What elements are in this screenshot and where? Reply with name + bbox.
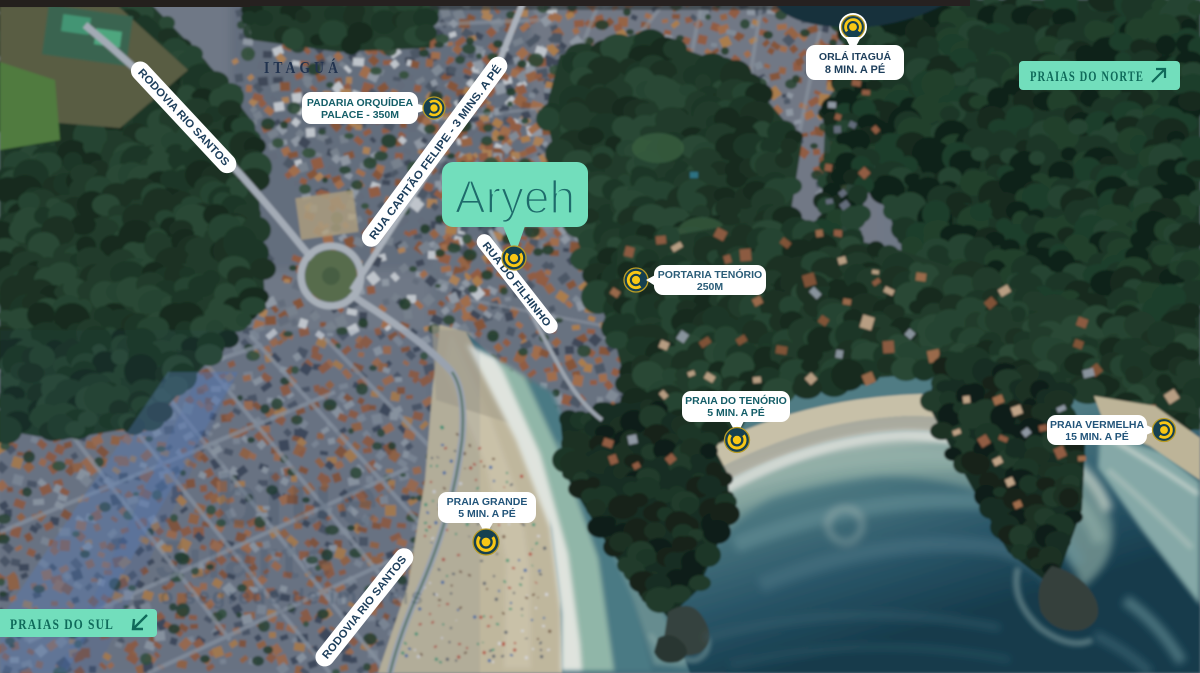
svg-text:PRAIA VERMELHA: PRAIA VERMELHA: [1050, 419, 1145, 431]
svg-text:PRAIAS DO NORTE: PRAIAS DO NORTE: [1030, 69, 1144, 85]
svg-text:PRAIA GRANDE: PRAIA GRANDE: [447, 496, 528, 508]
svg-text:8 MIN. A PÉ: 8 MIN. A PÉ: [825, 63, 885, 76]
svg-text:5 MIN. A PÉ: 5 MIN. A PÉ: [707, 406, 765, 419]
svg-text:Aryeh: Aryeh: [455, 171, 575, 223]
svg-text:PRAIAS DO SUL: PRAIAS DO SUL: [10, 617, 114, 633]
svg-text:PALACE - 350M: PALACE - 350M: [321, 109, 399, 121]
svg-text:5 MIN. A PÉ: 5 MIN. A PÉ: [458, 507, 516, 520]
svg-text:PRAIA DO TENÓRIO: PRAIA DO TENÓRIO: [685, 394, 787, 407]
svg-text:15 MIN. A PÉ: 15 MIN. A PÉ: [1065, 430, 1128, 443]
svg-text:ORLÁ ITAGUÁ: ORLÁ ITAGUÁ: [819, 50, 892, 63]
svg-text:250M: 250M: [697, 281, 724, 293]
svg-text:PADARIA ORQUÍDEA: PADARIA ORQUÍDEA: [307, 96, 414, 109]
svg-text:ITAGUÁ: ITAGUÁ: [264, 58, 342, 77]
svg-text:PORTARIA TENÓRIO: PORTARIA TENÓRIO: [658, 268, 762, 281]
